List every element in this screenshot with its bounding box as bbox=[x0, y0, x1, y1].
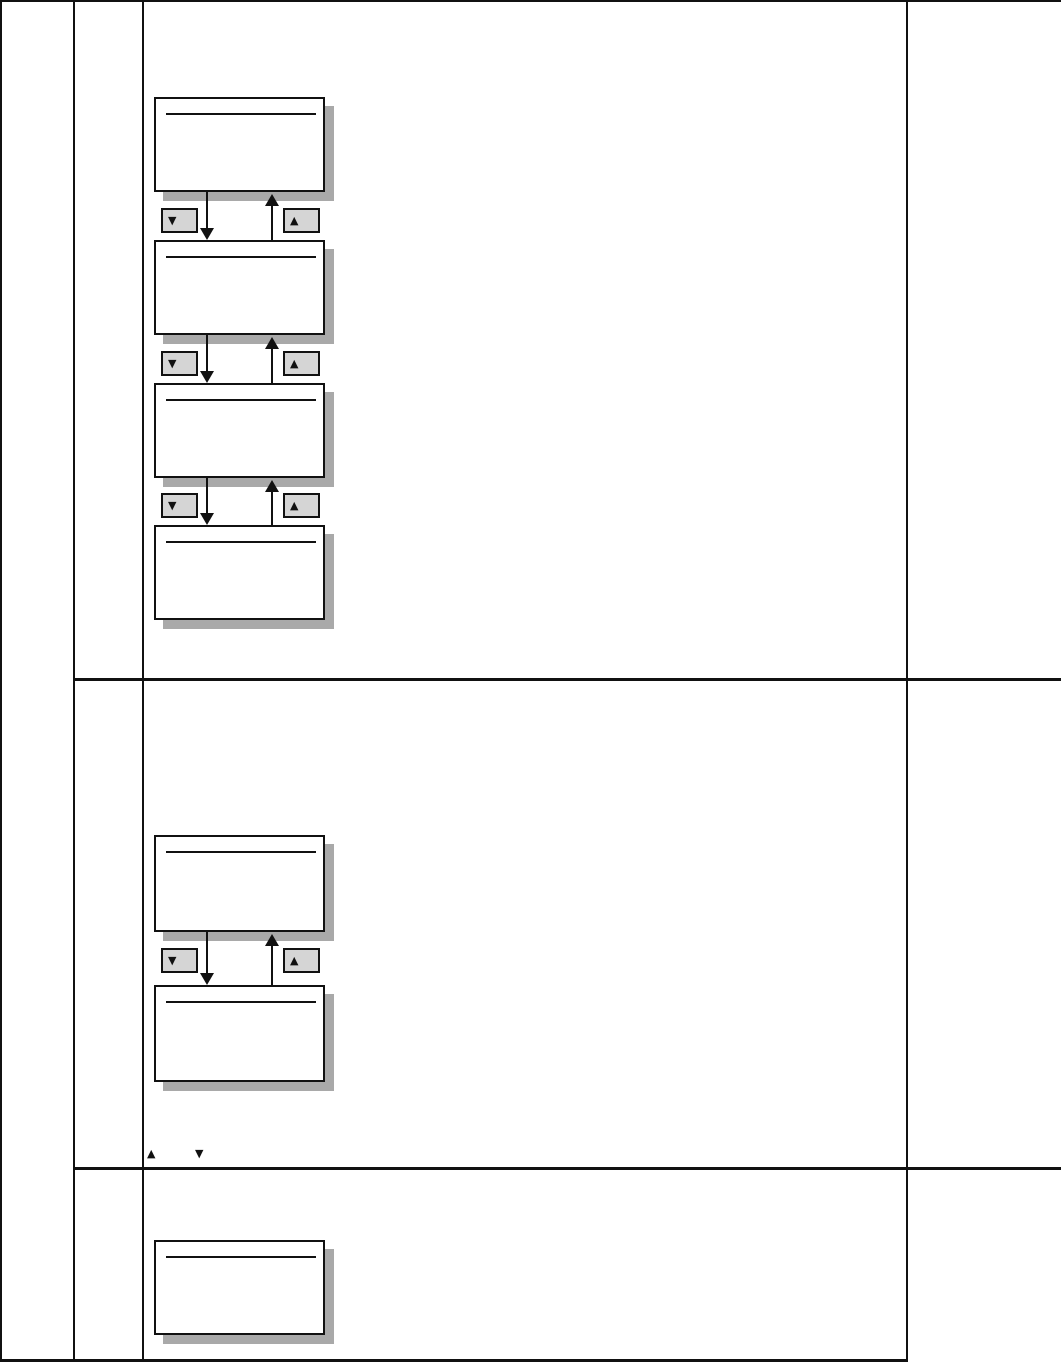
flow-arrow-down-line bbox=[206, 335, 208, 372]
lcd-display-panel-4 bbox=[154, 525, 325, 620]
flow-arrow-down-line bbox=[206, 932, 208, 974]
flow-arrow-down-head bbox=[200, 973, 214, 985]
flow-arrow-up-line bbox=[271, 945, 273, 985]
up-triangle-icon: ▲ bbox=[290, 500, 298, 511]
flow-arrow-up-line bbox=[271, 348, 273, 383]
down-key-symbol: ▼ bbox=[195, 1148, 203, 1159]
flow-arrow-down-head bbox=[200, 371, 214, 383]
flow-arrow-down-line bbox=[206, 478, 208, 514]
up-triangle-icon: ▲ bbox=[290, 215, 298, 226]
document-page: ▼ ▲ ▼ ▲ ▼ ▲ ▼ ▲ ▲ ▼ bbox=[0, 0, 1061, 1364]
lcd-display-panel-6 bbox=[154, 985, 325, 1082]
table-border-bottom bbox=[0, 1359, 908, 1362]
table-row-divider-1 bbox=[74, 678, 1061, 681]
down-triangle-icon: ▼ bbox=[168, 500, 176, 511]
panel-title-rule bbox=[166, 851, 316, 853]
panel-title-rule bbox=[166, 541, 316, 543]
up-triangle-icon: ▲ bbox=[290, 955, 298, 966]
panel-title-rule bbox=[166, 399, 316, 401]
up-key-button: ▲ bbox=[283, 351, 320, 376]
up-key-button: ▲ bbox=[283, 948, 320, 973]
up-key-button: ▲ bbox=[283, 208, 320, 233]
down-key-button: ▼ bbox=[161, 208, 198, 233]
table-column-line-3 bbox=[906, 0, 908, 1361]
table-column-line-2 bbox=[142, 0, 144, 1361]
flow-arrow-down-head bbox=[200, 228, 214, 240]
panel-title-rule bbox=[166, 113, 316, 115]
lcd-display-panel-2 bbox=[154, 240, 325, 335]
table-header-divider bbox=[0, 0, 1061, 2]
table-column-line-1 bbox=[73, 0, 75, 1361]
up-triangle-icon: ▲ bbox=[290, 358, 298, 369]
down-triangle-icon: ▼ bbox=[168, 358, 176, 369]
down-triangle-icon: ▼ bbox=[168, 215, 176, 226]
flow-arrow-up-line bbox=[271, 491, 273, 525]
down-key-button: ▼ bbox=[161, 351, 198, 376]
panel-title-rule bbox=[166, 256, 316, 258]
flow-arrow-up-line bbox=[271, 205, 273, 240]
down-triangle-icon: ▼ bbox=[168, 955, 176, 966]
panel-title-rule bbox=[166, 1256, 316, 1258]
lcd-display-panel-5 bbox=[154, 835, 325, 932]
table-row-divider-2 bbox=[74, 1167, 1061, 1170]
up-key-button: ▲ bbox=[283, 493, 320, 518]
lcd-display-panel-1 bbox=[154, 97, 325, 192]
flow-arrow-down-line bbox=[206, 192, 208, 229]
flow-arrow-down-head bbox=[200, 513, 214, 525]
table-border-left bbox=[0, 0, 2, 1361]
up-key-symbol: ▲ bbox=[147, 1148, 155, 1159]
lcd-display-panel-3 bbox=[154, 383, 325, 478]
panel-title-rule bbox=[166, 1001, 316, 1003]
down-key-button: ▼ bbox=[161, 948, 198, 973]
lcd-display-panel-7 bbox=[154, 1240, 325, 1335]
down-key-button: ▼ bbox=[161, 493, 198, 518]
